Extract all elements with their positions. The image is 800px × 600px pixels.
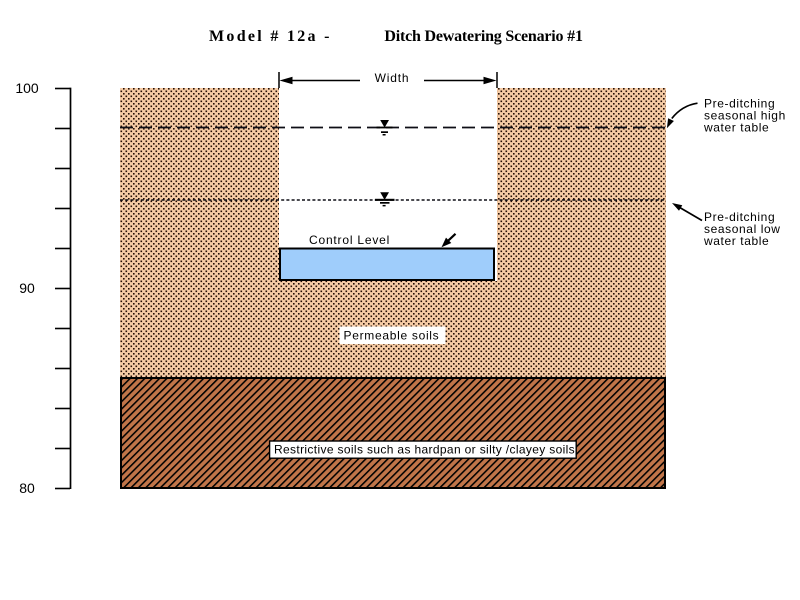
svg-text:90: 90 xyxy=(19,280,35,296)
svg-text:Restrictive soils such as hard: Restrictive soils such as hardpan or sil… xyxy=(274,443,575,457)
svg-text:water table: water table xyxy=(703,234,769,248)
svg-text:100: 100 xyxy=(15,80,39,96)
svg-text:80: 80 xyxy=(19,480,35,496)
svg-text:water table: water table xyxy=(703,121,769,135)
svg-text:Permeable soils: Permeable soils xyxy=(344,329,440,343)
svg-text:Model # 12a -: Model # 12a - xyxy=(209,28,332,45)
svg-text:Control Level: Control Level xyxy=(309,233,390,247)
svg-text:Width: Width xyxy=(375,71,410,85)
svg-text:Ditch Dewatering Scenario #1: Ditch Dewatering Scenario #1 xyxy=(384,28,583,45)
